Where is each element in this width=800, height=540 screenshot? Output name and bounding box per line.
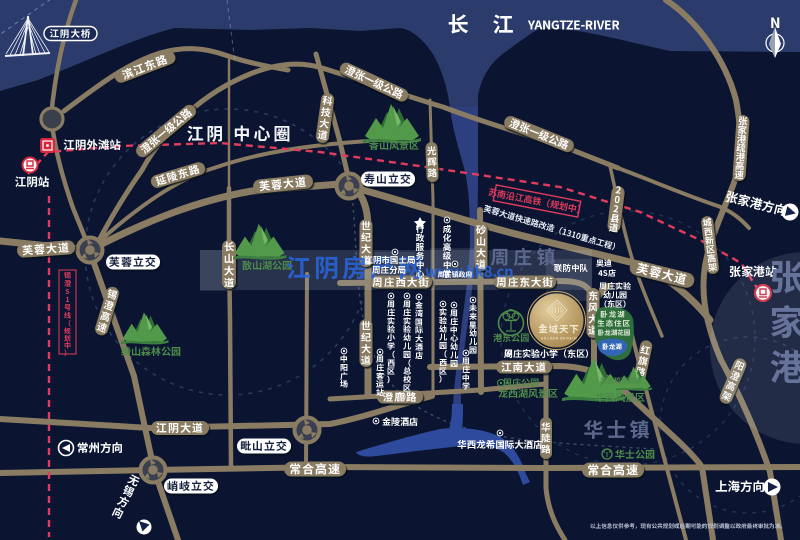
svg-text:周庄镇政府: 周庄镇政府 (438, 270, 473, 280)
svg-text:GOLDEN DOMAIN: GOLDEN DOMAIN (541, 336, 577, 341)
svg-text:未来星幼儿园: 未来星幼儿园 (468, 303, 478, 356)
svg-text:金湾国际大酒店: 金湾国际大酒店 (414, 300, 424, 361)
svg-text:华士镇: 华士镇 (584, 414, 653, 443)
svg-text:江阴外滩站: 江阴外滩站 (63, 137, 121, 153)
svg-text:周庄中心幼儿园: 周庄中心幼儿园 (449, 308, 458, 369)
svg-text:绮山森林公园: 绮山森林公园 (120, 343, 181, 358)
svg-text:张家港: 张家港 (769, 250, 800, 391)
svg-text:江: 江 (493, 9, 514, 39)
svg-text:华西龙希国际大酒店: 华西龙希国际大酒店 (457, 437, 543, 451)
svg-text:华西风景区: 华西风景区 (594, 389, 645, 404)
svg-text:（东区）: （东区） (599, 299, 631, 310)
svg-text:中阳广场: 中阳广场 (340, 354, 349, 390)
svg-text:香山风景区: 香山风景区 (368, 137, 419, 152)
svg-text:江阴大桥: 江阴大桥 (49, 26, 91, 40)
svg-text:上海方向: 上海方向 (715, 476, 765, 495)
svg-text:周庄客运站: 周庄客运站 (375, 354, 385, 399)
svg-text:江阴站: 江阴站 (15, 174, 50, 190)
svg-text:澄鹿路: 澄鹿路 (383, 390, 418, 405)
svg-text:芙蓉立交: 芙蓉立交 (109, 254, 157, 270)
svg-text:江阴 中心圈: 江阴 中心圈 (187, 120, 294, 145)
svg-text:芙蓉大道: 芙蓉大道 (22, 239, 71, 258)
svg-text:周庄实验小学（西区）: 周庄实验小学（西区） (386, 299, 396, 386)
svg-text:江南大道: 江南大道 (501, 360, 547, 375)
svg-text:周庄实验小学（东区）: 周庄实验小学（东区） (503, 347, 594, 360)
svg-text:峭岐立交: 峭岐立交 (167, 478, 215, 494)
svg-text:（规划中）: （规划中） (63, 319, 72, 359)
svg-text:周庄实验幼儿园（总校区）: 周庄实验幼儿园（总校区） (402, 299, 412, 402)
svg-text:常合高速: 常合高速 (289, 460, 341, 477)
svg-text:华士公园: 华士公园 (614, 446, 655, 461)
svg-text:YANGTZE-RIVER: YANGTZE-RIVER (528, 16, 620, 34)
svg-text:港东公园: 港东公园 (493, 331, 529, 344)
svg-text:实验幼儿园（西区）: 实验幼儿园（西区） (439, 307, 448, 385)
svg-text:庄: 庄 (539, 328, 544, 334)
svg-text:行政服务中心: 行政服务中心 (416, 223, 425, 280)
svg-text:4S店: 4S店 (598, 268, 616, 279)
svg-text:敔山湖公园: 敔山湖公园 (242, 257, 292, 272)
svg-text:江阴大道: 江阴大道 (156, 420, 204, 436)
svg-text:周庄分局: 周庄分局 (371, 264, 406, 276)
svg-text:长: 长 (448, 9, 469, 39)
svg-text:常州方向: 常州方向 (77, 440, 123, 456)
svg-text:联防中队: 联防中队 (554, 262, 589, 274)
svg-text:毗山立交: 毗山立交 (240, 438, 288, 454)
svg-text:卧龙湖: 卧龙湖 (602, 341, 622, 351)
svg-text:周庄中学: 周庄中学 (461, 356, 470, 392)
svg-text:金域天下: 金域天下 (538, 322, 579, 336)
svg-text:常合高速: 常合高速 (587, 461, 639, 478)
svg-text:光辉路: 光辉路 (427, 143, 438, 179)
svg-text:长山大道: 长山大道 (224, 239, 235, 290)
svg-text:金陵酒店: 金陵酒店 (382, 415, 418, 428)
svg-text:以上信息仅供参考，现有公共规划或后期可能的规划调整以政府最终: 以上信息仅供参考，现有公共规划或后期可能的规划调整以政府最终审批为准。 (590, 522, 786, 530)
svg-text:寿山立交: 寿山立交 (364, 171, 412, 187)
svg-text:卧龙湖花园: 卧龙湖花园 (598, 327, 631, 337)
svg-text:龙西湖风景区: 龙西湖风景区 (497, 385, 558, 400)
svg-text:世纪大道: 世纪大道 (361, 317, 372, 367)
svg-text:华西琉璃桃园: 华西琉璃桃园 (600, 376, 642, 386)
